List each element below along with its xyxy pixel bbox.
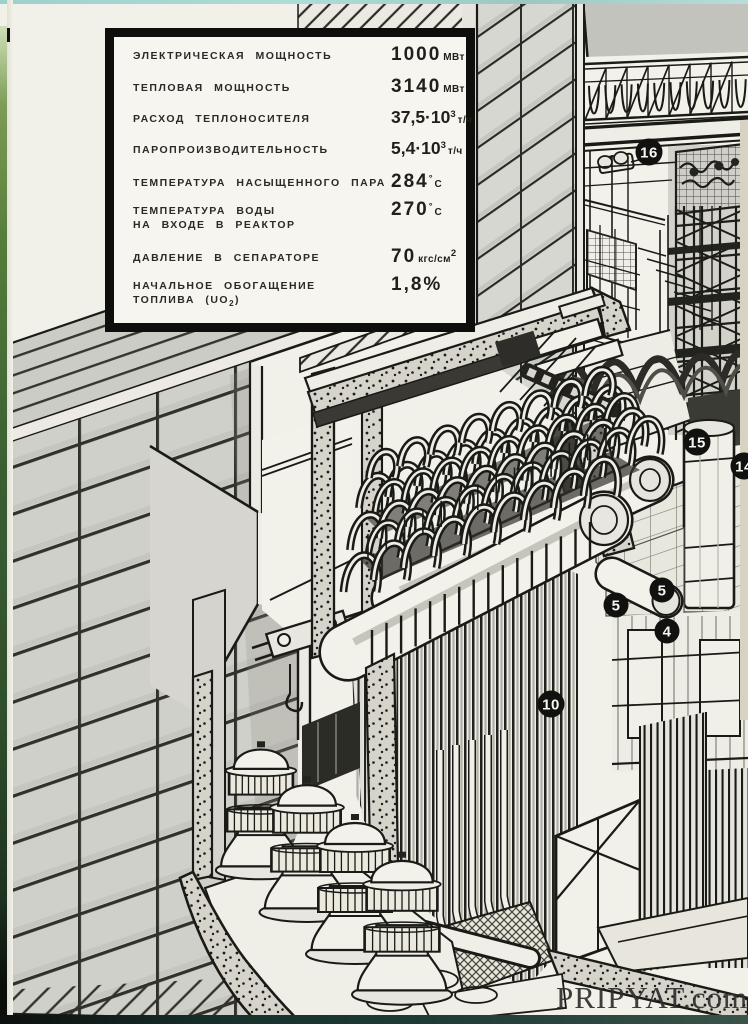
- svg-text:10: 10: [542, 697, 560, 714]
- svg-text:16: 16: [640, 145, 658, 162]
- svg-text:5: 5: [612, 598, 621, 615]
- svg-text:4: 4: [663, 624, 672, 641]
- svg-text:5: 5: [658, 583, 667, 600]
- svg-text:14: 14: [735, 459, 748, 476]
- svg-text:15: 15: [688, 435, 706, 452]
